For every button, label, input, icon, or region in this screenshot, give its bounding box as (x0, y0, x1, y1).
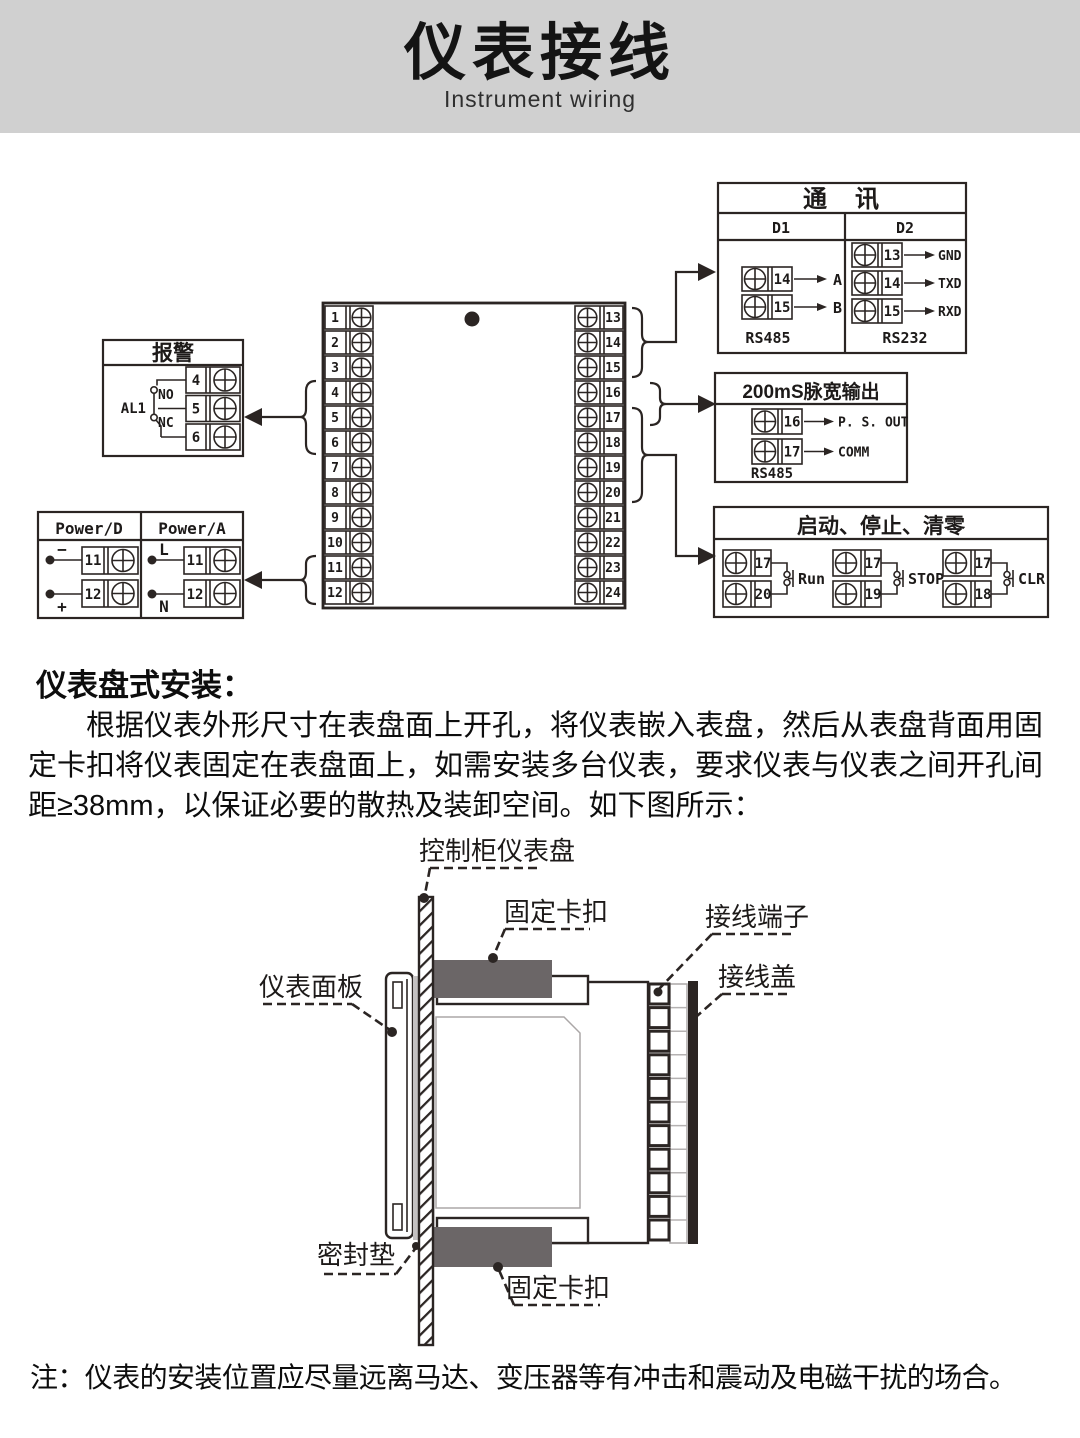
mounting-dot (465, 312, 480, 327)
svg-text:13: 13 (884, 248, 901, 264)
svg-text:2: 2 (331, 336, 339, 351)
svg-text:23: 23 (605, 561, 621, 576)
label-clip-bottom: 固定卡扣 (506, 1273, 610, 1303)
svg-text:1: 1 (331, 311, 339, 326)
alarm-nc-label: NC (158, 416, 174, 431)
svg-text:19: 19 (865, 587, 882, 603)
manual-page: 仪表接线 Instrument wiring (0, 0, 1080, 1438)
alarm-relay-label: AL1 (121, 401, 146, 417)
arrow-to-power-box (244, 571, 262, 589)
bottom-note: 注：仪表的安装位置应尽量远离马达、变压器等有冲击和震动及电磁干扰的场合。 (30, 1356, 1070, 1396)
svg-text:18: 18 (605, 436, 621, 451)
instrument-faceplate (386, 973, 413, 1238)
label-terminal: 接线端子 (705, 902, 809, 932)
main-terminal-block: 1 2 3 4 5 6 7 8 9 10 11 12 (323, 303, 625, 608)
arrow-to-alarm-box (244, 408, 262, 426)
comm-col-d2: D2 (896, 219, 914, 237)
cabinet-panel (419, 897, 433, 1345)
svg-text:STOP: STOP (908, 570, 944, 588)
fixing-clip-bottom (434, 1227, 552, 1267)
svg-text:3: 3 (331, 361, 339, 376)
svg-text:5: 5 (331, 411, 339, 426)
svg-text:L: L (159, 540, 169, 559)
svg-text:19: 19 (605, 461, 621, 476)
svg-text:15: 15 (884, 304, 901, 320)
svg-text:9: 9 (331, 511, 339, 526)
installation-diagram: 控制柜仪表盘 固定卡扣 接线端子 接线盖 仪表面板 密封垫 固定卡扣 (259, 836, 809, 1345)
alarm-box: 报警 4 5 6 AL1 NO NC (103, 340, 243, 456)
arrow-to-comm-box (698, 263, 716, 281)
label-gasket: 密封垫 (317, 1240, 395, 1270)
svg-text:14: 14 (774, 272, 791, 288)
comm-box-title: 通 讯 (803, 186, 881, 213)
control-box-title: 启动、停止、清零 (797, 514, 966, 538)
alarm-box-title: 报警 (152, 341, 194, 365)
svg-text:17: 17 (865, 556, 882, 572)
svg-text:17: 17 (784, 445, 801, 461)
pulse-box-title: 200mS脉宽输出 (742, 380, 879, 403)
svg-text:P. S. OUT: P. S. OUT (838, 416, 909, 431)
svg-text:14: 14 (884, 276, 901, 292)
svg-text:A: A (833, 271, 842, 289)
svg-text:11: 11 (327, 561, 343, 576)
svg-text:20: 20 (605, 486, 621, 501)
svg-text:N: N (159, 597, 169, 616)
svg-text:17: 17 (605, 411, 621, 426)
svg-text:+: + (57, 597, 67, 616)
svg-text:CLR: CLR (1018, 570, 1046, 588)
svg-text:12: 12 (85, 587, 102, 603)
svg-text:20: 20 (755, 587, 772, 603)
svg-text:B: B (833, 299, 842, 317)
svg-text:4: 4 (331, 386, 339, 401)
svg-text:Run: Run (798, 570, 825, 588)
svg-text:8: 8 (331, 486, 339, 501)
power-box: Power/D Power/A − + 11 12 L N 11 12 (38, 512, 243, 618)
comm-col-d1: D1 (772, 219, 790, 237)
svg-text:17: 17 (975, 556, 992, 572)
svg-text:14: 14 (605, 336, 621, 351)
terminal-strip (649, 984, 687, 1243)
svg-text:10: 10 (327, 536, 343, 551)
svg-text:GND: GND (938, 249, 962, 264)
pulse-footer: RS485 (751, 466, 793, 482)
wiring-cover-bar (688, 981, 698, 1244)
svg-text:17: 17 (755, 556, 772, 572)
comm-d1-footer: RS485 (745, 329, 790, 347)
svg-text:7: 7 (331, 461, 339, 476)
svg-text:15: 15 (605, 361, 621, 376)
label-clip-top: 固定卡扣 (504, 897, 608, 927)
svg-text:16: 16 (784, 415, 801, 431)
power-col-a: Power/A (158, 519, 226, 538)
svg-text:13: 13 (605, 311, 621, 326)
instrument-inner-case (436, 1017, 580, 1208)
power-col-d: Power/D (55, 519, 122, 538)
svg-text:5: 5 (192, 402, 200, 418)
alarm-no-label: NO (158, 388, 174, 403)
svg-text:RXD: RXD (938, 305, 962, 320)
pulse-box: 200mS脉宽输出 16 17 P. S. OUT COMM RS485 (715, 373, 909, 482)
svg-text:12: 12 (327, 586, 343, 601)
svg-text:11: 11 (187, 553, 204, 569)
fixing-clip-top (434, 960, 552, 998)
svg-text:16: 16 (605, 386, 621, 401)
svg-text:4: 4 (192, 373, 200, 389)
svg-text:24: 24 (605, 586, 621, 601)
svg-text:6: 6 (192, 430, 200, 446)
control-box: 启动、停止、清零 17 20 Run 17 19 STOP (714, 507, 1048, 617)
svg-text:11: 11 (85, 553, 102, 569)
svg-text:15: 15 (774, 300, 791, 316)
svg-text:22: 22 (605, 536, 621, 551)
svg-text:21: 21 (605, 511, 621, 526)
svg-text:18: 18 (975, 587, 992, 603)
arrow-to-pulse-box (698, 395, 716, 413)
installation-paragraph: 根据仪表外形尺寸在表盘面上开孔，将仪表嵌入表盘，然后从表盘背面用固定卡扣将仪表固… (28, 706, 1056, 826)
comm-d2-footer: RS232 (882, 329, 927, 347)
svg-text:12: 12 (187, 587, 204, 603)
label-faceplate: 仪表面板 (259, 972, 363, 1002)
svg-text:TXD: TXD (938, 277, 962, 292)
svg-text:COMM: COMM (838, 446, 869, 461)
svg-text:−: − (57, 540, 67, 559)
svg-text:6: 6 (331, 436, 339, 451)
connector-wires (244, 263, 716, 604)
comm-box: 通 讯 D1 D2 14 15 A B RS485 (718, 183, 966, 353)
label-cabinet-panel: 控制柜仪表盘 (419, 836, 575, 866)
section-heading: 仪表盘式安装： (36, 660, 253, 705)
label-cover: 接线盖 (718, 962, 796, 992)
